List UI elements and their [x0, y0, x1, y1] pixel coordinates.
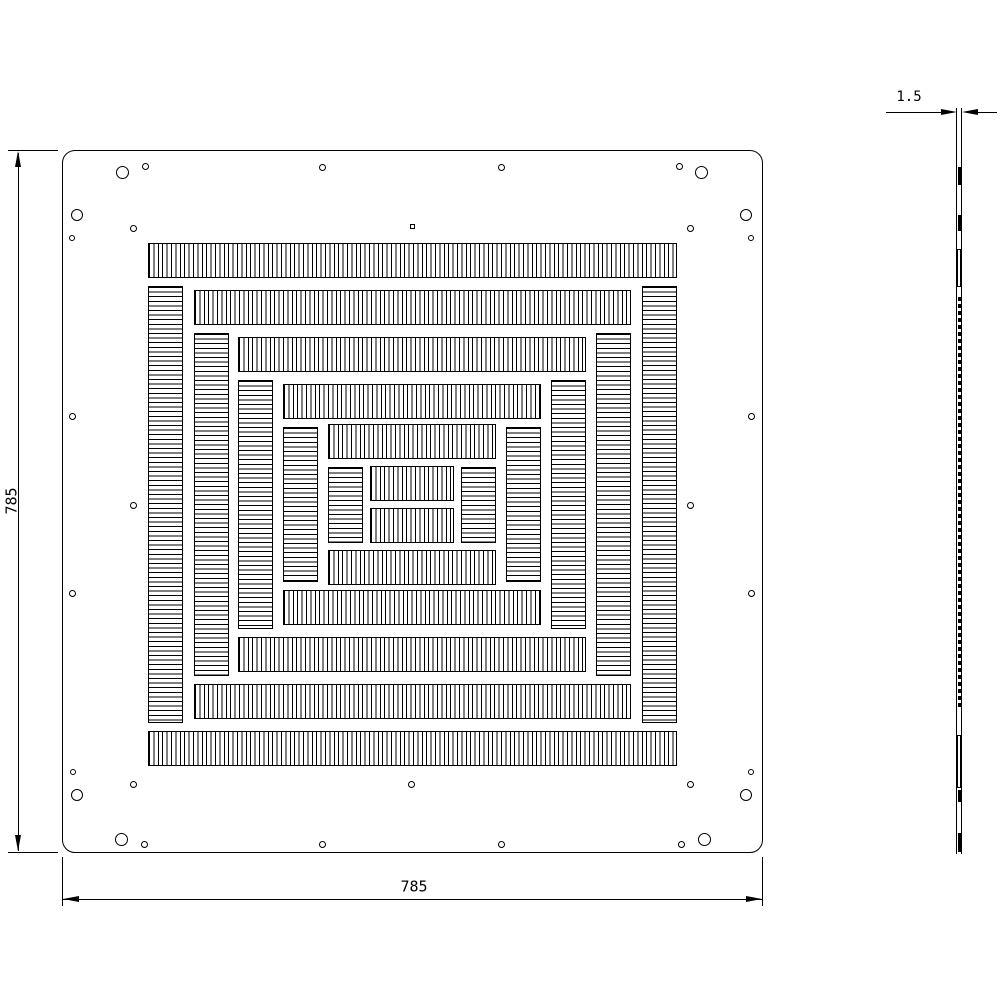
height-dim-label: 785	[5, 487, 20, 514]
slot-edge-dash	[958, 437, 961, 441]
slot-band	[148, 243, 677, 278]
slot-edge-dash	[958, 703, 961, 707]
hole	[678, 841, 685, 848]
slot-edge-dash	[958, 318, 961, 322]
slot-edge-mark	[958, 833, 961, 852]
hole	[748, 590, 755, 597]
slot-band	[238, 337, 586, 372]
slot-edge-dash	[958, 619, 961, 623]
slot-edge-dash	[958, 346, 961, 350]
slot-edge-dash	[958, 325, 961, 329]
thickness-dim-line-left	[886, 112, 942, 113]
slot-edge-dash	[958, 647, 961, 651]
slot-edge-dash	[958, 395, 961, 399]
slot-edge-dash	[958, 430, 961, 434]
slot-edge-dash	[958, 675, 961, 679]
slot-band	[642, 286, 677, 723]
hole	[740, 789, 752, 801]
slot-edge-dash	[958, 584, 961, 588]
thickness-dim-label: 1.5	[896, 90, 921, 104]
hole	[676, 163, 683, 170]
thickness-dim-arrow-left	[941, 109, 957, 115]
slot-band	[194, 333, 229, 676]
slot-edge-dash	[958, 374, 961, 378]
slot-band	[551, 380, 586, 629]
slot-edge-mark	[957, 735, 961, 788]
slot-edge-dash	[958, 339, 961, 343]
slot-edge-dash	[958, 416, 961, 420]
slot-band	[148, 731, 677, 766]
slot-edge-dash	[958, 367, 961, 371]
slot-edge-dash	[958, 528, 961, 532]
hole	[687, 781, 694, 788]
slot-edge-dash	[958, 332, 961, 336]
hole	[130, 781, 137, 788]
hole	[498, 841, 505, 848]
slot-edge-dash	[958, 570, 961, 574]
slot-edge-dash	[958, 661, 961, 665]
slot-edge-dash	[958, 542, 961, 546]
slot-edge-dash	[958, 458, 961, 462]
slot-edge-dash	[958, 493, 961, 497]
slot-edge-dash	[958, 682, 961, 686]
slot-edge-dash	[958, 598, 961, 602]
slot-edge-dash	[958, 311, 961, 315]
hole	[69, 235, 75, 241]
slot-edge-dash	[958, 423, 961, 427]
slot-band	[370, 508, 454, 543]
height-ext-line-bottom	[8, 852, 58, 853]
side-plate-strip	[956, 108, 962, 854]
slot-band	[328, 424, 496, 459]
slot-edge-mark	[958, 215, 961, 231]
slot-band	[328, 467, 363, 543]
hole	[130, 502, 137, 509]
slot-band	[238, 380, 273, 629]
slot-band	[283, 590, 541, 625]
hole	[141, 841, 148, 848]
hole	[687, 225, 694, 232]
hole	[319, 164, 326, 171]
slot-edge-dash	[958, 381, 961, 385]
slot-edge-dash	[958, 304, 961, 308]
slot-band	[370, 466, 454, 501]
slot-edge-mark	[957, 249, 961, 287]
slot-edge-dash	[958, 402, 961, 406]
slot-edge-dash	[958, 563, 961, 567]
slot-edge-dash	[958, 535, 961, 539]
square-hole	[410, 224, 415, 229]
slot-edge-dash	[958, 668, 961, 672]
slot-edge-mark	[958, 167, 961, 185]
hole	[130, 225, 137, 232]
width-ext-line-left	[62, 857, 63, 906]
slot-edge-dash	[958, 465, 961, 469]
thickness-dim-arrow-right	[962, 109, 978, 115]
hole	[740, 209, 752, 221]
slot-band	[148, 286, 183, 723]
slot-edge-dash	[958, 591, 961, 595]
slot-edge-dash	[958, 444, 961, 448]
hole	[71, 209, 83, 221]
slot-edge-dash	[958, 556, 961, 560]
slot-edge-dash	[958, 297, 961, 301]
slot-edge-dash	[958, 409, 961, 413]
width-dim-label: 785	[400, 880, 427, 895]
slot-edge-dash	[958, 479, 961, 483]
hole	[142, 163, 149, 170]
hole	[116, 166, 129, 179]
slot-edge-dash	[958, 388, 961, 392]
slot-edge-dash	[958, 451, 961, 455]
hole	[69, 590, 76, 597]
slot-edge-dash	[958, 696, 961, 700]
slot-edge-dash	[958, 612, 961, 616]
slot-edge-dash	[958, 640, 961, 644]
hole	[319, 841, 326, 848]
slot-edge-dash	[958, 689, 961, 693]
hole	[408, 781, 415, 788]
hole	[69, 413, 76, 420]
width-dim-line	[63, 899, 762, 900]
slot-band	[328, 550, 496, 585]
slot-band	[194, 684, 631, 719]
hole	[70, 769, 76, 775]
slot-band	[461, 467, 496, 543]
slot-edge-dash	[958, 507, 961, 511]
slot-edge-dash	[958, 549, 961, 553]
slot-band	[596, 333, 631, 676]
width-ext-line-right	[762, 857, 763, 906]
slot-edge-dash	[958, 514, 961, 518]
slot-edge-dash	[958, 577, 961, 581]
hole	[748, 769, 754, 775]
width-dim-arrow-right	[746, 896, 762, 902]
slot-edge-dash	[958, 360, 961, 364]
slot-band	[506, 427, 541, 582]
thickness-dim-line-right	[978, 112, 997, 113]
slot-edge-dash	[958, 486, 961, 490]
slot-edge-dash	[958, 605, 961, 609]
hole	[115, 833, 128, 846]
slot-band	[283, 384, 541, 419]
slot-edge-dash	[958, 633, 961, 637]
slot-edge-dash	[958, 654, 961, 658]
slot-band	[238, 637, 586, 672]
hole	[695, 166, 708, 179]
slot-edge-dash	[958, 353, 961, 357]
slot-edge-dash	[958, 626, 961, 630]
hole	[748, 413, 755, 420]
technical-drawing: 785 785 1.5	[0, 0, 1000, 1000]
slot-edge-dash	[958, 472, 961, 476]
hole	[687, 502, 694, 509]
height-dim-arrow-top	[15, 151, 21, 167]
slot-band	[283, 427, 318, 582]
hole	[498, 164, 505, 171]
slot-edge-dash	[958, 500, 961, 504]
slot-edge-mark	[958, 790, 961, 802]
width-dim-arrow-left	[63, 896, 79, 902]
slot-edge-dash	[958, 521, 961, 525]
height-ext-line-top	[8, 150, 58, 151]
hole	[748, 235, 754, 241]
hole	[71, 789, 83, 801]
hole	[698, 833, 711, 846]
height-dim-arrow-bottom	[15, 835, 21, 851]
slot-band	[194, 290, 631, 325]
